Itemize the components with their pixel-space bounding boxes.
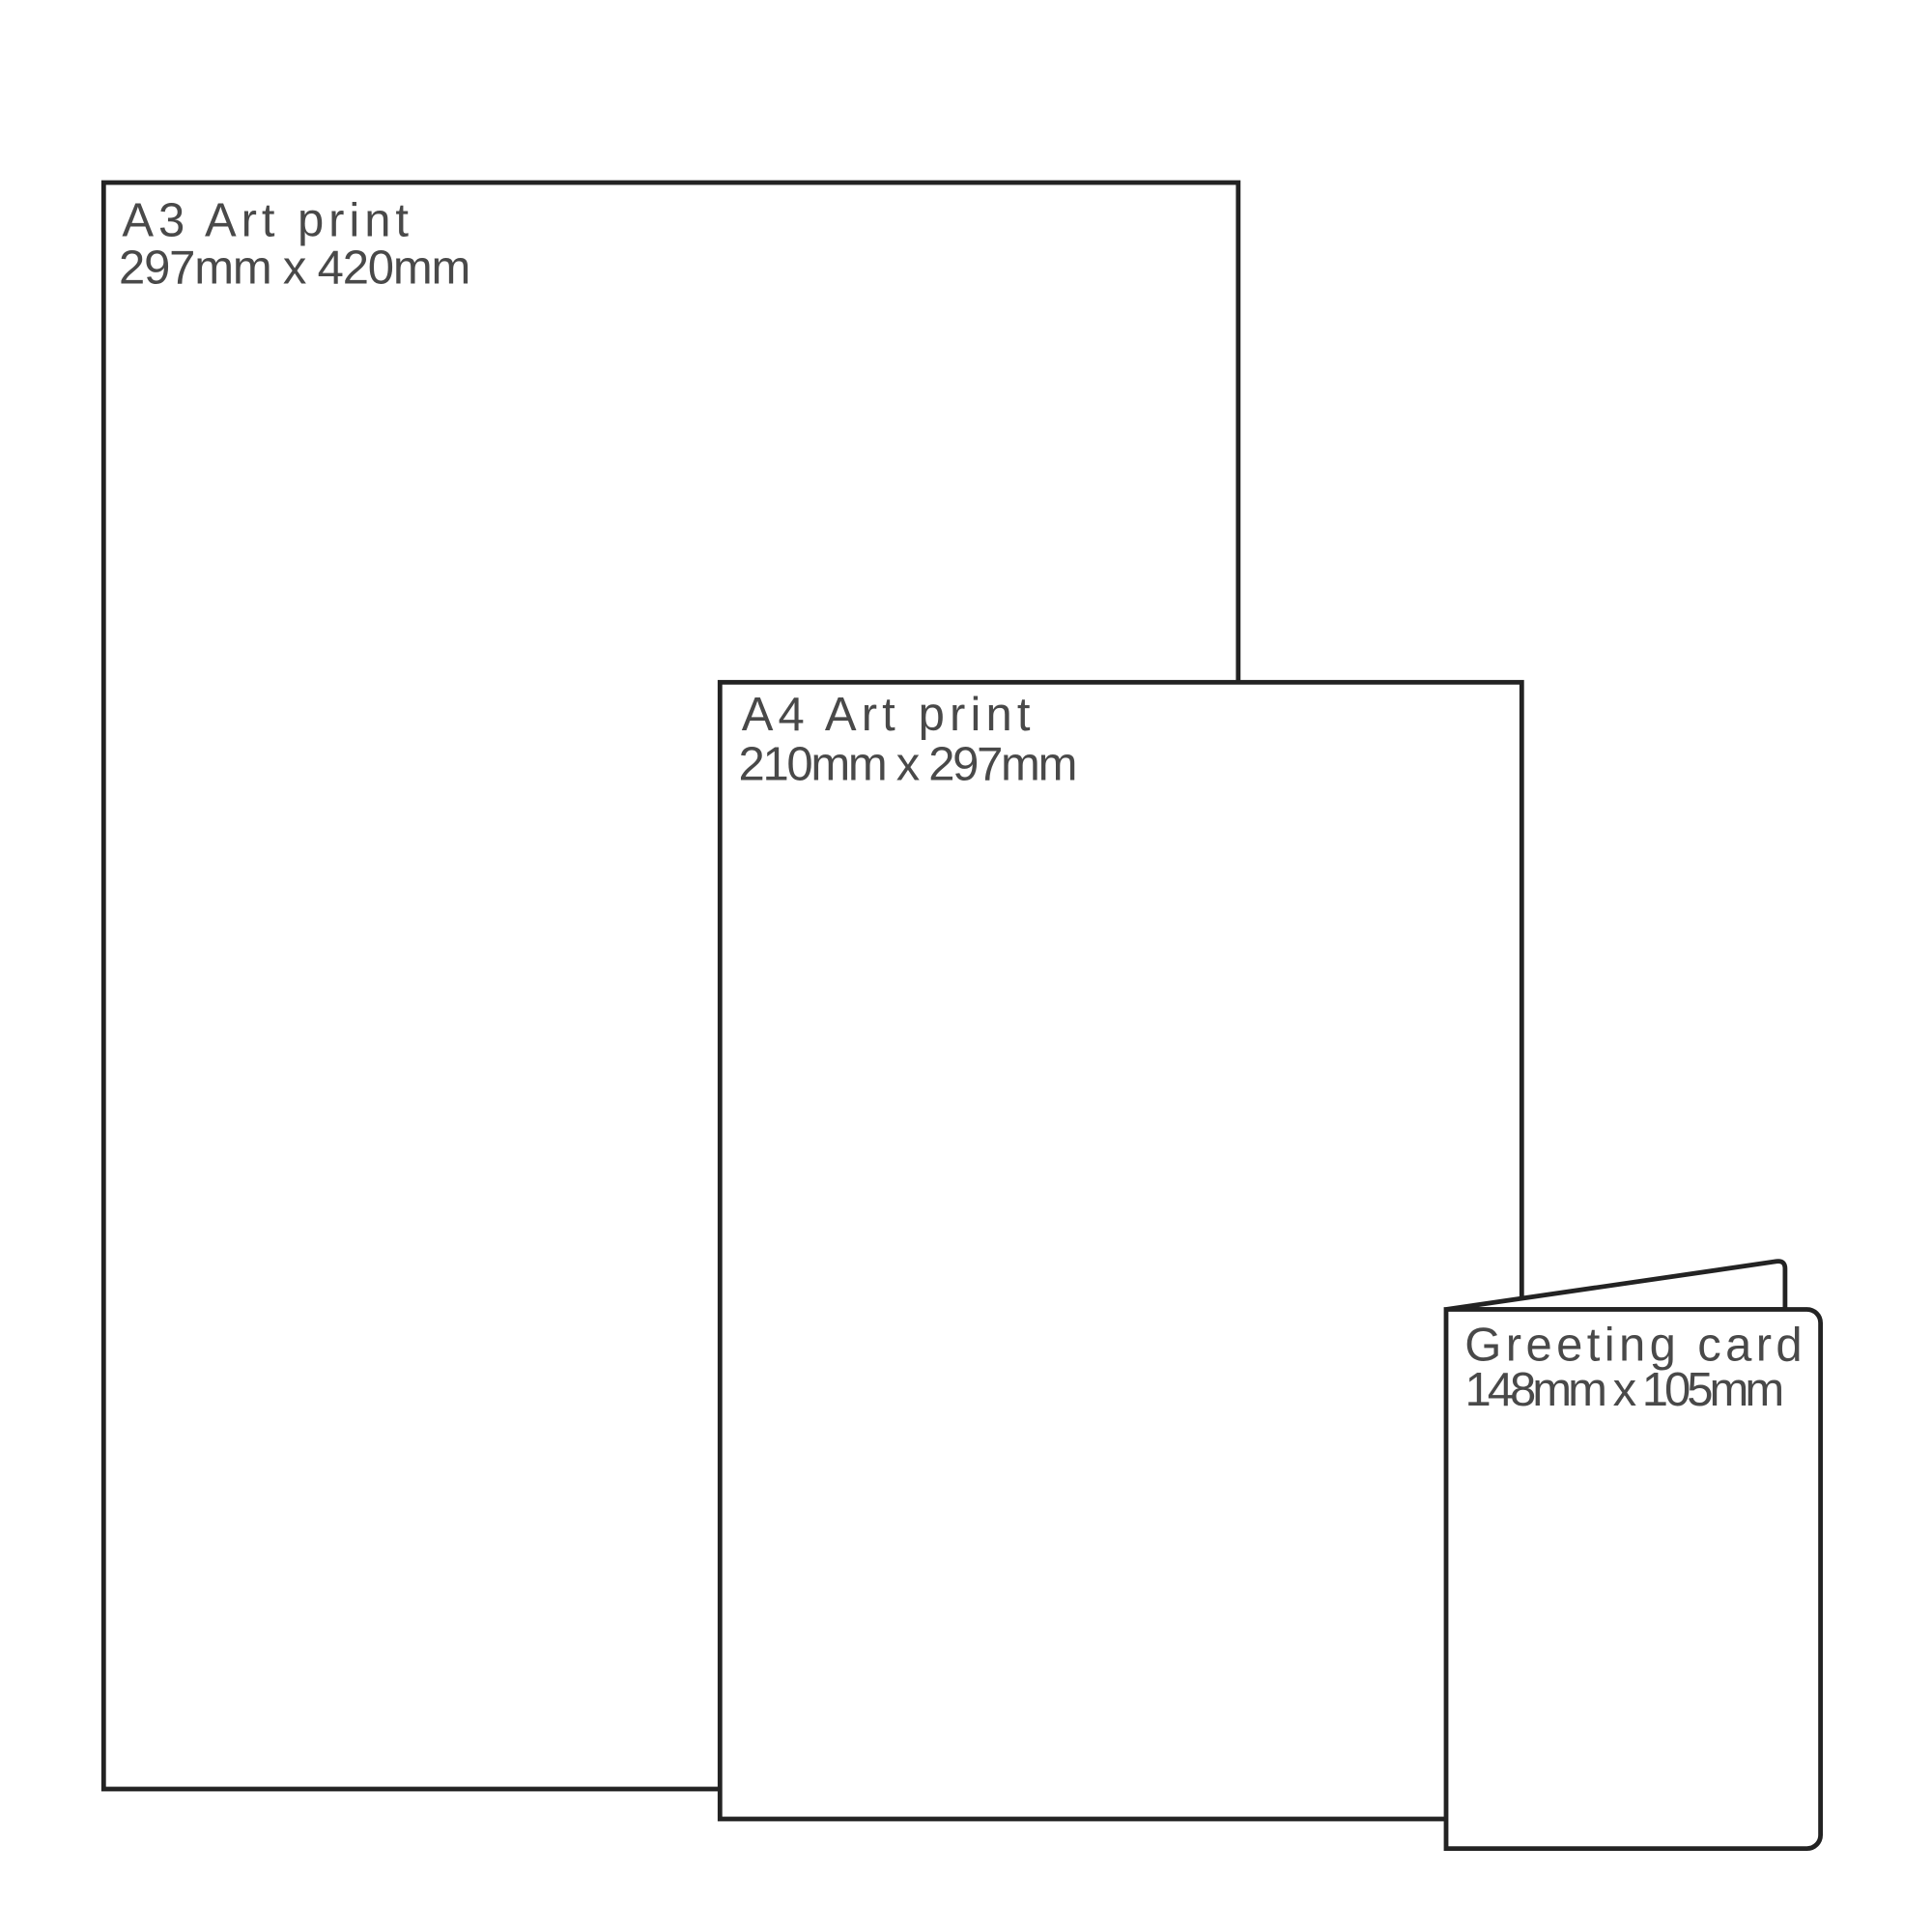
svg-text:297mm x 420mm: 297mm x 420mm: [119, 241, 470, 294]
svg-text:A3 Art print: A3 Art print: [122, 195, 409, 247]
svg-text:210mm x 297mm: 210mm x 297mm: [739, 738, 1078, 790]
svg-text:148mm x 105mm: 148mm x 105mm: [1465, 1364, 1785, 1416]
svg-text:A4 Art print: A4 Art print: [742, 689, 1031, 741]
